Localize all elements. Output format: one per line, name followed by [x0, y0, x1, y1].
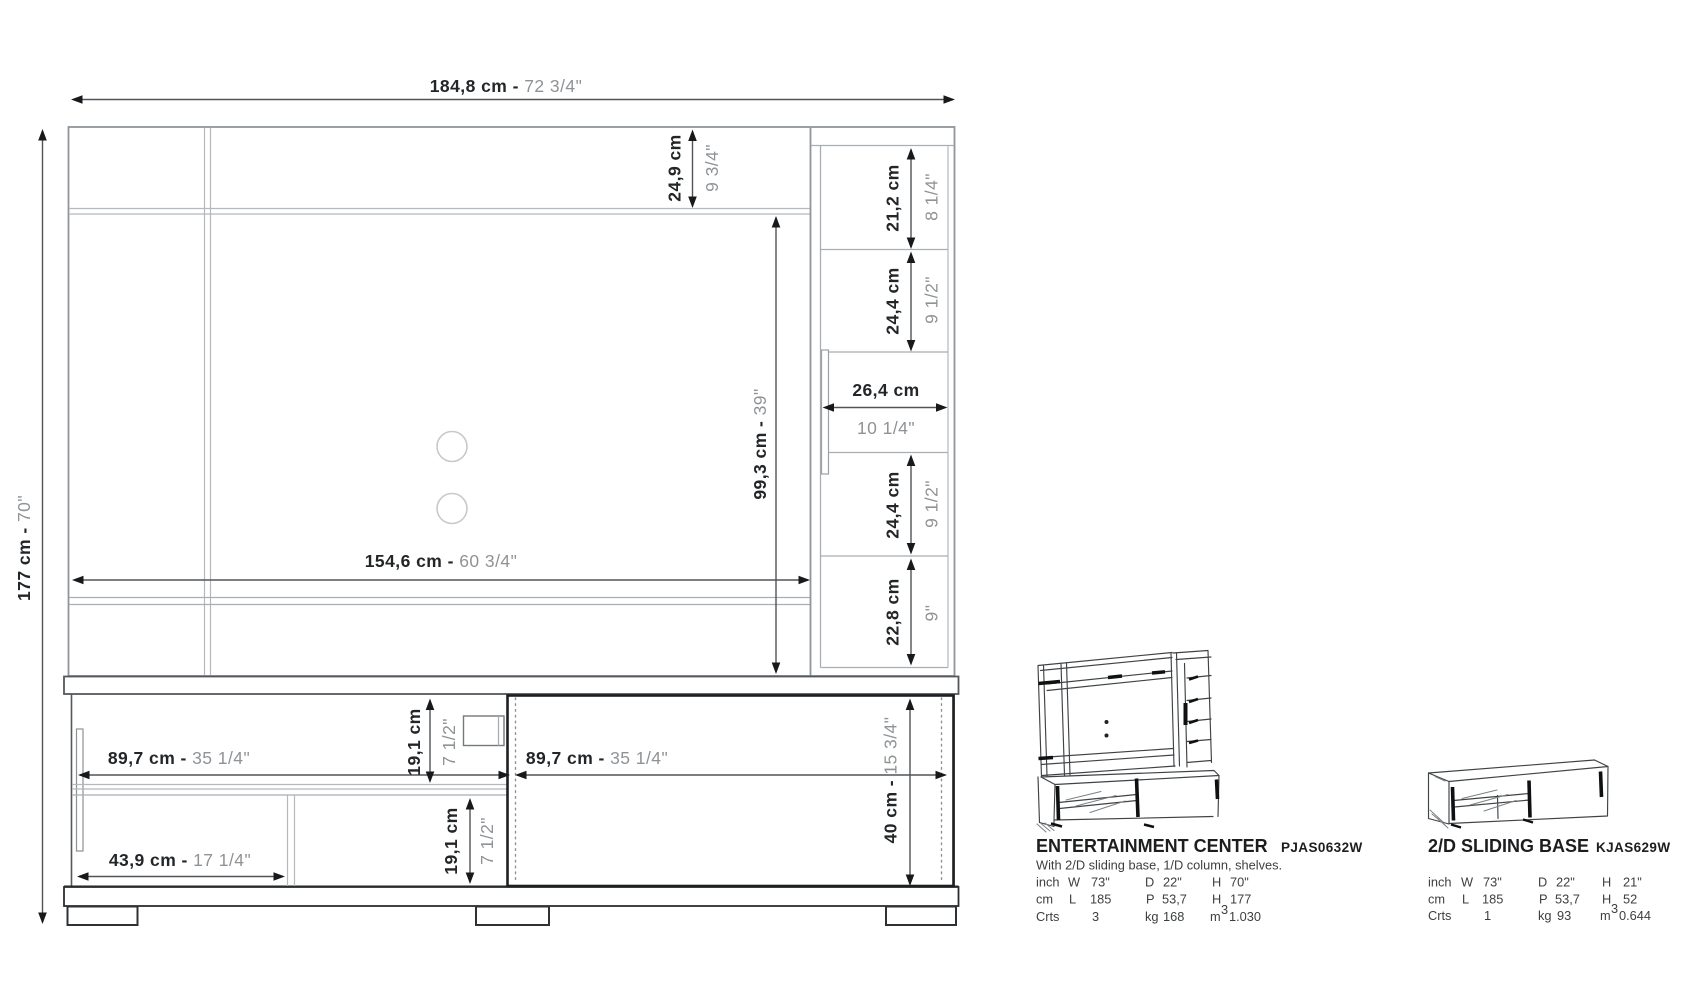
svg-text:m: m [1600, 908, 1611, 923]
svg-text:24,9 cm: 24,9 cm [665, 134, 685, 201]
svg-text:89,7 cm - 35 1/4": 89,7 cm - 35 1/4" [108, 748, 250, 768]
svg-text:Crts: Crts [1428, 908, 1451, 923]
svg-text:73": 73" [1091, 875, 1110, 890]
svg-text:185: 185 [1482, 892, 1503, 907]
svg-text:52: 52 [1623, 892, 1637, 907]
svg-text:70": 70" [1230, 875, 1249, 890]
svg-text:22,8 cm: 22,8 cm [883, 578, 903, 645]
svg-text:H: H [1602, 892, 1611, 907]
svg-text:73": 73" [1483, 875, 1502, 890]
svg-text:19,1 cm: 19,1 cm [404, 708, 424, 775]
svg-text:P: P [1146, 892, 1155, 907]
svg-text:26,4 cm: 26,4 cm [852, 380, 919, 400]
svg-text:cm: cm [1036, 892, 1053, 907]
svg-text:1.030: 1.030 [1229, 909, 1261, 924]
svg-text:168: 168 [1163, 909, 1184, 924]
svg-text:53,7: 53,7 [1555, 892, 1580, 907]
svg-text:L: L [1462, 892, 1469, 907]
svg-text:89,7 cm - 35 1/4": 89,7 cm - 35 1/4" [526, 748, 668, 768]
svg-text:H: H [1212, 892, 1221, 907]
svg-text:3: 3 [1611, 901, 1618, 916]
svg-text:9 3/4": 9 3/4" [702, 144, 722, 192]
svg-text:1: 1 [1484, 908, 1491, 923]
svg-text:kg: kg [1538, 908, 1552, 923]
svg-text:177: 177 [1230, 892, 1251, 907]
svg-text:D: D [1145, 875, 1154, 890]
svg-text:9 1/2": 9 1/2" [922, 480, 942, 528]
svg-text:10 1/4": 10 1/4" [857, 418, 915, 438]
svg-text:43,9 cm - 17 1/4": 43,9 cm - 17 1/4" [109, 850, 251, 870]
svg-text:0.644: 0.644 [1619, 908, 1651, 923]
svg-text:93: 93 [1557, 908, 1571, 923]
svg-text:7 1/2": 7 1/2" [477, 817, 497, 865]
svg-text:inch: inch [1036, 875, 1059, 890]
svg-text:21,2 cm: 21,2 cm [883, 164, 903, 231]
svg-text:KJAS629W: KJAS629W [1596, 840, 1670, 855]
svg-text:8 1/4": 8 1/4" [922, 173, 942, 221]
svg-text:24,4 cm: 24,4 cm [883, 471, 903, 538]
svg-text:40 cm - 15 3/4": 40 cm - 15 3/4" [880, 717, 900, 844]
svg-text:W: W [1461, 875, 1474, 890]
svg-text:ENTERTAINMENT CENTER: ENTERTAINMENT CENTER [1036, 836, 1268, 856]
svg-text:cm: cm [1428, 892, 1445, 907]
svg-text:H: H [1602, 875, 1611, 890]
svg-text:D: D [1538, 875, 1547, 890]
svg-text:7 1/2": 7 1/2" [439, 718, 459, 766]
svg-text:W: W [1068, 875, 1081, 890]
svg-text:21": 21" [1623, 875, 1642, 890]
svg-text:53,7: 53,7 [1162, 892, 1187, 907]
svg-text:9": 9" [922, 605, 942, 622]
svg-text:With 2/D sliding base, 1/D col: With 2/D sliding base, 1/D column, shelv… [1036, 858, 1282, 873]
svg-text:inch: inch [1428, 875, 1451, 890]
svg-text:3: 3 [1092, 909, 1099, 924]
svg-text:Crts: Crts [1036, 909, 1059, 924]
svg-text:22": 22" [1556, 875, 1575, 890]
svg-text:kg: kg [1145, 909, 1159, 924]
svg-text:99,3 cm - 39": 99,3 cm - 39" [750, 388, 770, 499]
svg-text:184,8 cm - 72 3/4": 184,8 cm - 72 3/4" [430, 76, 583, 96]
svg-text:H: H [1212, 875, 1221, 890]
svg-text:19,1 cm: 19,1 cm [441, 807, 461, 874]
svg-text:185: 185 [1090, 892, 1111, 907]
svg-text:P: P [1539, 892, 1548, 907]
svg-text:2/D SLIDING BASE: 2/D SLIDING BASE [1428, 836, 1589, 856]
svg-text:22": 22" [1163, 875, 1182, 890]
svg-text:24,4 cm: 24,4 cm [883, 267, 903, 334]
svg-text:3: 3 [1221, 902, 1228, 917]
svg-text:9 1/2": 9 1/2" [922, 276, 942, 324]
svg-text:154,6 cm - 60 3/4": 154,6 cm - 60 3/4" [365, 551, 518, 571]
svg-text:m: m [1210, 909, 1221, 924]
svg-text:PJAS0632W: PJAS0632W [1281, 840, 1363, 855]
svg-text:L: L [1069, 892, 1076, 907]
svg-text:177 cm - 70": 177 cm - 70" [14, 495, 34, 601]
